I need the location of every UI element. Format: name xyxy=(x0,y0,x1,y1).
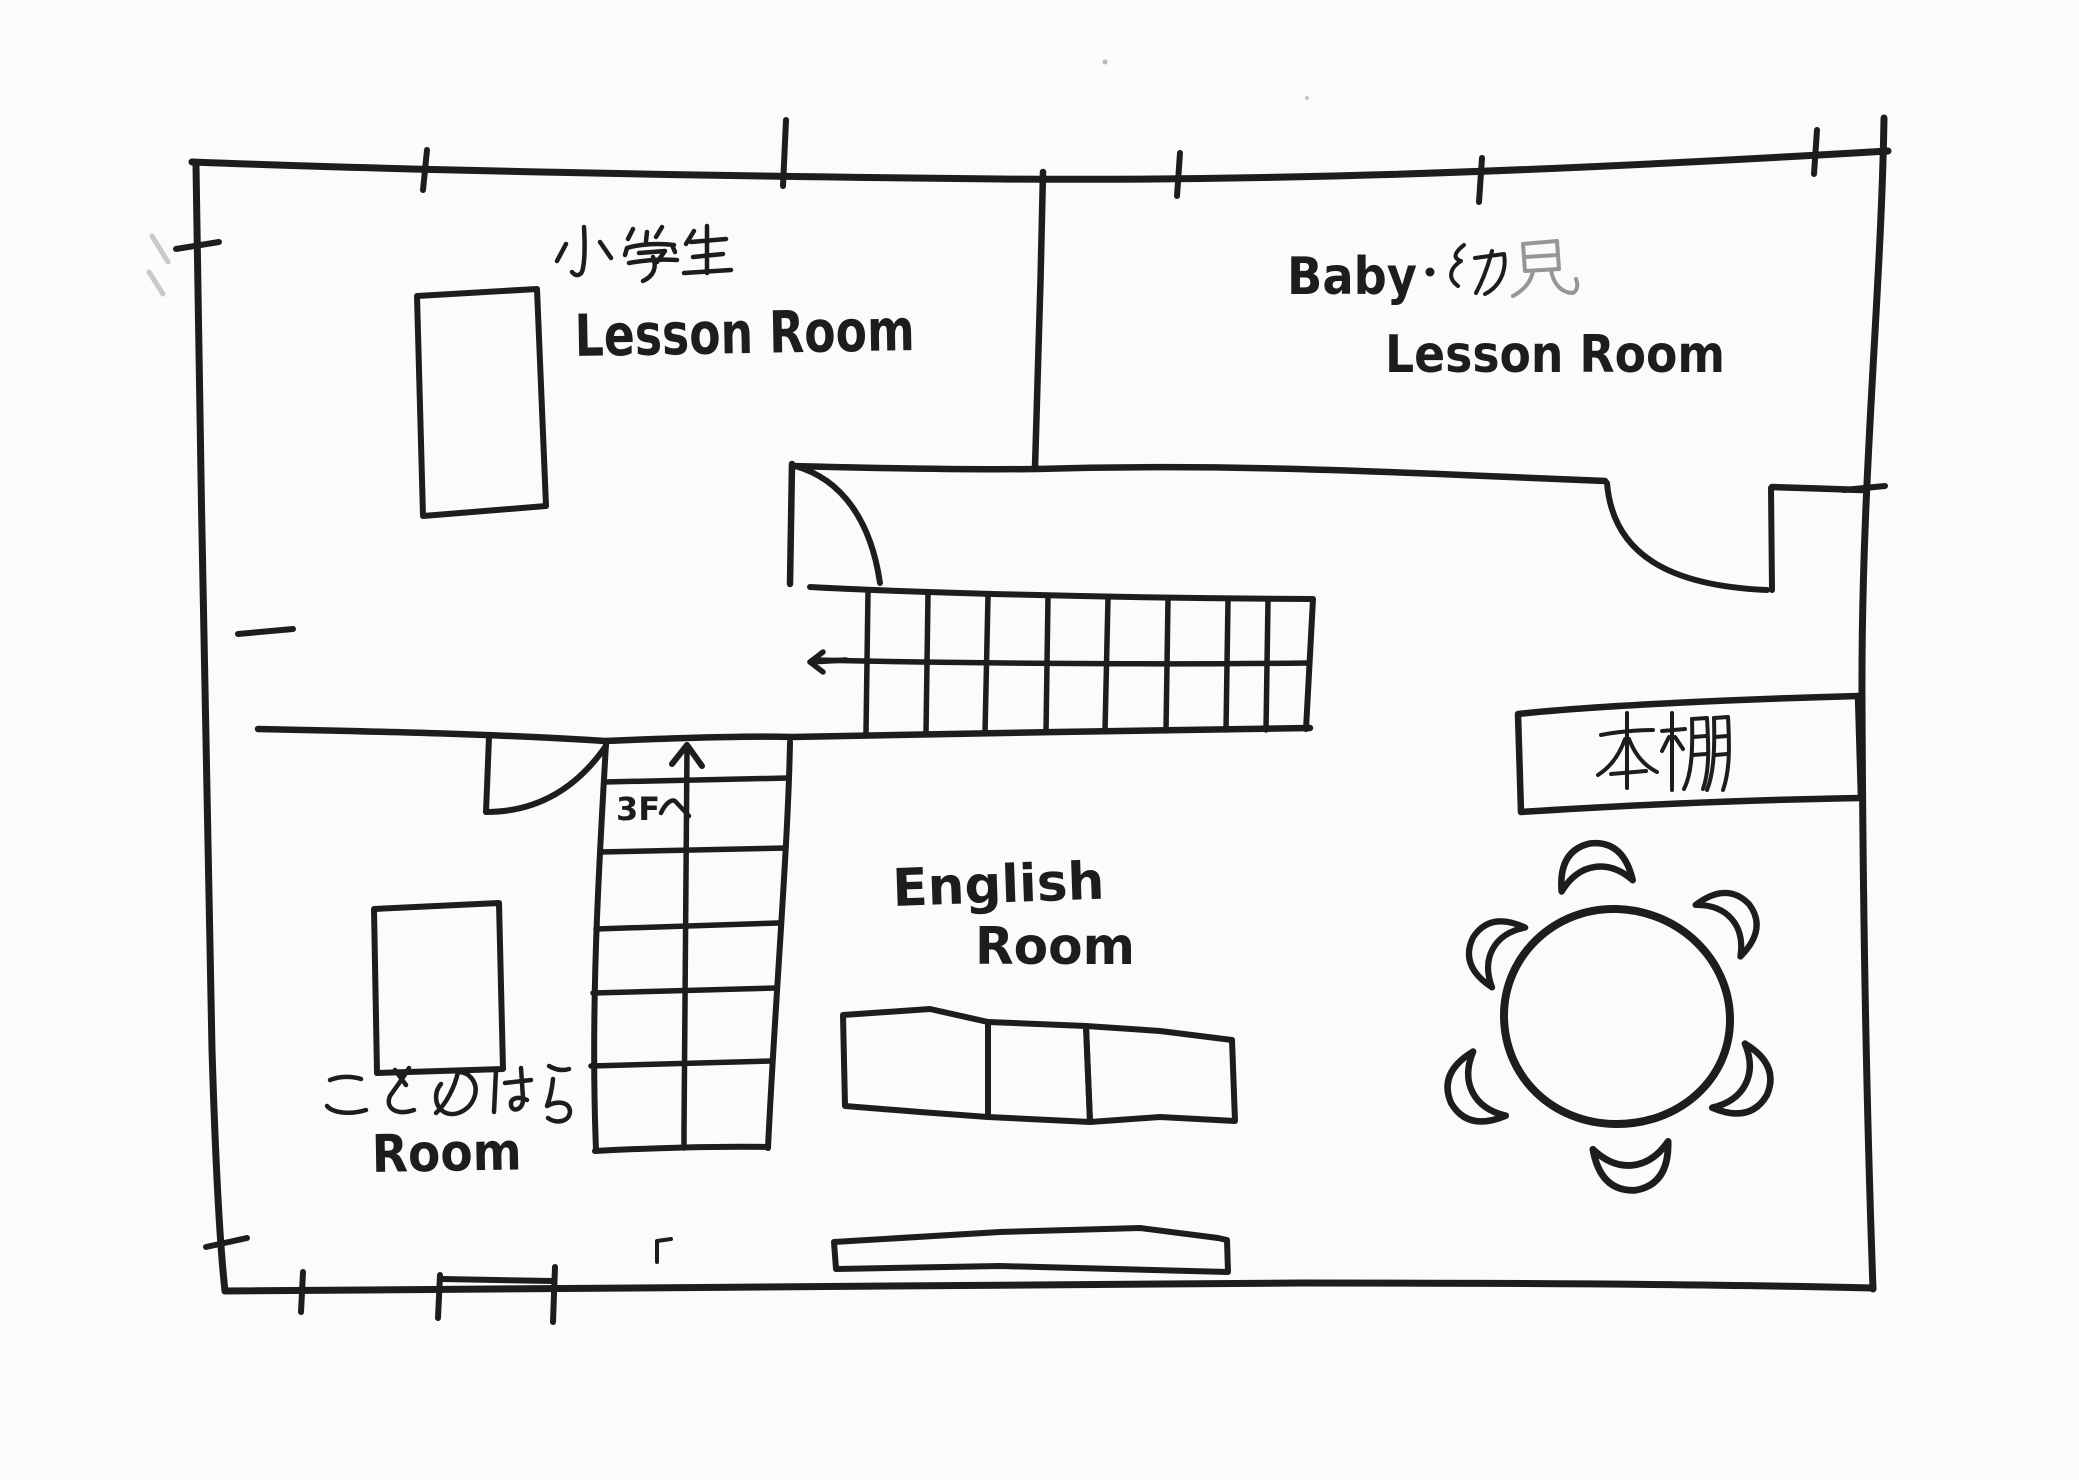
door-swing-arc xyxy=(1607,483,1767,590)
segmented-table xyxy=(843,1009,1235,1122)
label-baby-lesson-room: Lesson Room xyxy=(1385,325,1725,385)
stairs-3f-text: 3F xyxy=(616,790,660,828)
stair-step-line xyxy=(1105,598,1108,731)
door-swing-arc xyxy=(486,746,606,812)
kanji-stroke xyxy=(1662,729,1685,731)
wall-tick xyxy=(176,242,219,249)
label-kotonohara-room: Room xyxy=(371,1122,522,1185)
kana-stroke xyxy=(505,1080,531,1083)
stair-step-line xyxy=(593,988,776,993)
pencil-smudge xyxy=(152,236,168,262)
wall-baby-bottom-right xyxy=(1772,487,1862,490)
kanji-stroke xyxy=(1693,736,1706,755)
low-board xyxy=(834,1228,1228,1272)
kanji-stroke xyxy=(1523,241,1559,271)
wall-tick xyxy=(423,150,427,190)
table-section xyxy=(988,1022,1090,1122)
wall-tick xyxy=(206,1238,247,1247)
wall-tick xyxy=(301,1272,303,1312)
chair-icon xyxy=(1593,1141,1673,1194)
kana-stroke xyxy=(327,1106,366,1113)
kanji-stroke xyxy=(1598,739,1625,775)
chair-icon xyxy=(1696,878,1772,956)
kanji-stroke xyxy=(1662,737,1669,751)
door-leaf xyxy=(790,464,792,584)
scan-speck xyxy=(1103,60,1108,65)
label-elementary-lesson-room: Lesson Room xyxy=(574,296,915,370)
kanji-ji-pencil xyxy=(1513,241,1577,296)
stair-step-line xyxy=(985,596,988,733)
stair-step-line xyxy=(866,592,868,732)
kana-stroke xyxy=(494,1070,496,1112)
door-baby-room xyxy=(1607,483,1772,590)
separator-dot xyxy=(1426,268,1435,277)
stairs-top-edge xyxy=(810,587,1312,599)
desk-elementary-room xyxy=(417,289,546,516)
door-jamb xyxy=(1771,488,1772,590)
wall-baby-bottom-left xyxy=(793,466,1605,481)
wall-tick xyxy=(783,120,786,186)
floor-plan-page: 3F xyxy=(0,0,2079,1480)
round-table xyxy=(1504,909,1730,1124)
label-shogakusei-ja xyxy=(557,226,731,281)
stairs-midline xyxy=(813,660,1308,664)
stair-step-line xyxy=(604,778,788,782)
wall-left xyxy=(196,166,225,1291)
stair-step-line xyxy=(591,1061,772,1066)
stair-step-line xyxy=(1266,600,1268,730)
kana-stroke xyxy=(330,1077,361,1080)
kanji-stroke xyxy=(1551,270,1577,293)
wall-tick xyxy=(1479,158,1482,202)
stairs-right-edge xyxy=(768,742,790,1148)
pencil-smudge xyxy=(149,272,163,294)
stair-step-line xyxy=(926,594,928,733)
wall-tick xyxy=(238,629,293,634)
kanji-stroke xyxy=(1513,271,1533,296)
label-bookshelf-ja xyxy=(1598,713,1729,790)
interior-walls xyxy=(258,172,1862,741)
wall-right xyxy=(1862,118,1884,1289)
stray-mark xyxy=(657,1239,671,1262)
floor-plan-canvas: 3F xyxy=(0,0,2079,1480)
kanji-stroke xyxy=(572,227,585,275)
kana-stroke xyxy=(511,1068,527,1109)
wall-room-divider xyxy=(1035,172,1043,468)
chair-icon xyxy=(1555,838,1633,892)
stair-step-line xyxy=(1166,599,1168,731)
stair-step-line xyxy=(600,848,786,852)
kanji-stroke xyxy=(628,227,662,241)
scan-speck xyxy=(1305,96,1309,100)
wall-tick xyxy=(1177,153,1180,196)
door-leaf xyxy=(486,737,489,812)
label-youji-ja xyxy=(1451,241,1577,296)
bookshelf xyxy=(1518,696,1861,812)
table-section xyxy=(843,1009,988,1117)
wall-main-horizontal xyxy=(258,728,1310,741)
kana-stroke xyxy=(549,1066,569,1070)
door-swing-arc xyxy=(795,466,880,583)
door-kotonohara xyxy=(486,737,606,812)
wall-tick xyxy=(553,1267,555,1322)
label-kotonohara-ja xyxy=(327,1066,570,1121)
bookshelf-outline xyxy=(1518,696,1861,812)
stair-step-line xyxy=(1226,600,1228,730)
left-arrow-icon xyxy=(810,652,846,672)
wall-bottom xyxy=(225,1283,1873,1291)
kanji-stroke xyxy=(1675,737,1683,749)
label-baby: Baby xyxy=(1287,247,1417,307)
label-english-room: Room xyxy=(975,917,1135,977)
label-stairs-3f: 3F xyxy=(616,790,689,828)
desk-kotonohara-room xyxy=(374,903,503,1073)
stair-step-line xyxy=(1046,597,1048,732)
kanji-stroke xyxy=(1629,739,1657,772)
label-english: English xyxy=(891,852,1105,919)
table-section xyxy=(1086,1026,1235,1122)
round-table-set xyxy=(1435,838,1783,1195)
door-stairs-landing xyxy=(790,464,880,584)
wall-tick xyxy=(438,1275,440,1318)
kanji-stroke xyxy=(1451,245,1464,286)
kana-stroke xyxy=(547,1079,570,1121)
stairs-upper-flight xyxy=(810,587,1313,733)
stair-step-line xyxy=(596,923,778,929)
kanji-stroke xyxy=(1715,736,1727,755)
wall-bottom-doubled-segment xyxy=(442,1279,553,1281)
stairs-left-edge xyxy=(594,744,606,1150)
wall-tick xyxy=(1814,130,1817,174)
kanji-stroke xyxy=(1611,771,1646,774)
chair-icon xyxy=(1435,1052,1506,1136)
stairs-to-3f: 3F xyxy=(591,742,790,1151)
